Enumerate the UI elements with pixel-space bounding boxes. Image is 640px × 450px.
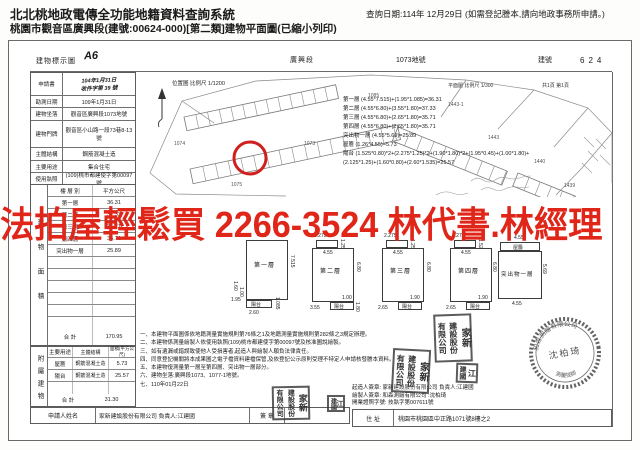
address-label: 住 址 [353, 410, 394, 426]
floor-name [48, 269, 93, 280]
info-row: 申請書 104年1月31日 收件字第 39 號 [31, 73, 135, 96]
attached-area: 5.73 [109, 361, 135, 367]
calc-line: 第二層 (4.55*6.80)+(3.55*1.80)=37.33 [343, 105, 613, 114]
info-value-line1: 109年1月31日 [82, 98, 117, 106]
attached-main: 主要用途 主體結構 面積(平方公尺) 屋簷 鋼筋混凝土造 5.73 陽台 鋼筋混… [48, 347, 135, 406]
col-structure: 主體結構 [73, 347, 109, 357]
applicant-label: 申請人姓名 [31, 408, 96, 423]
attached-total-label: 合 計 [48, 394, 88, 406]
attached-table: 附屬建物 主要用途 主體結構 面積(平方公尺) 屋簷 鋼筋混凝土造 5.73 陽… [30, 346, 136, 407]
info-value-line2: 收件字第 39 號 [81, 83, 118, 92]
calc-line: (2.125*1.25)+(1.60*0.80)+(2.60*1.535)=25… [343, 159, 613, 168]
info-label: 勘測日期 [31, 96, 63, 107]
attached-structure: 鋼筋混凝土造 [73, 370, 109, 381]
area-total-row: 合 計 170.95 [48, 329, 135, 345]
floor-name [48, 257, 93, 268]
info-value-line1: 集合住宅 [88, 163, 110, 171]
info-label: 建物坐落 [31, 108, 63, 120]
note-lines: 一、本建物平面圖係依地籍測量實施規則第76條之1及地籍測量實施規則第282條之3… [140, 331, 540, 389]
seal-text: 江 [467, 365, 477, 381]
company-seal: 家新 建設股份 有限公司 [433, 313, 473, 362]
svg-text:1439: 1439 [564, 183, 575, 189]
calc-line: 突出物一層 (4.55*5.69)=25.89 [343, 132, 613, 141]
person-seal: 江 建國 [456, 363, 479, 384]
license-line: 開業證照字號: 技執字第007611號 [352, 400, 434, 408]
info-value: 109年1月31日 [63, 96, 135, 107]
area-row [48, 269, 135, 281]
info-table: 申請書 104年1月31日 收件字第 39 號 勘測日期 109年1月31日 [30, 72, 136, 186]
doc-type-label: 建物標示圖 [36, 58, 76, 66]
area-row [48, 317, 135, 329]
svg-text:1075: 1075 [231, 182, 242, 188]
notes-block: 一、本建物平面圖係依地籍測量實施規則第76條之1及地籍測量實施規則第282條之3… [140, 331, 540, 389]
info-label: 申請書 [31, 73, 63, 95]
seal-text: 建設股份 [285, 388, 297, 418]
info-label: 主體結構 [31, 148, 63, 160]
stamp-title-arc: 測量技師 [553, 366, 578, 381]
area-row [48, 281, 135, 293]
north-arrow-icon [158, 88, 166, 127]
attached-use [48, 382, 73, 394]
info-row: 勘測日期 109年1月31日 [31, 96, 135, 108]
area-row [48, 257, 135, 269]
building-no-value: 624 [580, 56, 605, 65]
map-scale-label: 位置圖 比例尺 1/1200 [172, 79, 225, 87]
floor-name [48, 281, 93, 292]
svg-text:1074: 1074 [174, 141, 185, 147]
document-viewer-page: 北北桃地政電傳全功能地籍資料查詢系統 桃園市觀音區廣興段(建號:00624-00… [0, 0, 640, 450]
area-total-label: 合 計 [48, 329, 93, 345]
col-sqm: 平方公尺 [93, 187, 135, 195]
parcel-number: 1073地號 [396, 57, 426, 65]
building-strip [184, 85, 339, 131]
info-label: 建物門牌 [31, 121, 63, 147]
info-value: 觀音區小山路一段73巷8-13號 [63, 121, 135, 147]
info-value: 鋼筋混凝土造 [63, 148, 135, 160]
info-value-line1: 鋼筋混凝土造 [82, 150, 115, 158]
seal-text: 有限公司 [274, 388, 286, 418]
attached-row [48, 382, 135, 394]
highlight-circle [234, 142, 266, 174]
address-row: 住 址 桃園市桃園區中正路1071號8樓之2 [352, 409, 612, 427]
seal-text: 家新 [296, 388, 308, 418]
calc-line: 第一層 (4.55*7.515)+(1.95*1.085)=36.31 [343, 96, 613, 105]
seal-text: 建國 [329, 397, 336, 410]
section-name: 廣興段 [290, 57, 314, 65]
stamp-name: 沈柏琦 [548, 344, 582, 361]
doc-subtitle: 桃園市觀音區廣興段(建號:00624-000)[第二類]建物平面圖(已縮小列印) [10, 21, 337, 36]
note-line: 四、同意登記機關將本成果圖之電子檔資料建檔保管,及依登記公示原則受理不特定人申請… [140, 356, 540, 364]
company-seal: 家新 建設股份 有限公司 [391, 348, 431, 394]
note-line: 七、110年01月22日 [140, 381, 540, 389]
note-line: 三、如有遺漏或錯誤致使他人受損害者,起造人與繪製人願負法律責任。 [140, 348, 540, 356]
attached-use: 陽台 [48, 370, 73, 381]
calc-line: 陽台 (1.525*0.80)*2+(2.275*1.25)*2+(1.90*1… [343, 150, 613, 159]
info-value: 104年1月31日 收件字第 39 號 [63, 72, 136, 96]
person-seal: 江 建國 [327, 395, 345, 412]
area-row [48, 293, 135, 305]
doc-mark-handwritten: A6 [84, 50, 98, 62]
attached-side-label: 附屬建物 [31, 347, 48, 406]
attached-row: 陽台 鋼筋混凝土造 25.57 [48, 370, 135, 382]
query-date: 查詢日期:114年 12月29日 (如需登記謄本,請向地政事務所申請。) [366, 8, 605, 20]
applicant-value: 家新建設股份有限公司 負責人:江建國 [96, 408, 250, 423]
col-floor: 樓 層 別 [48, 185, 93, 196]
seal-text: 江 [336, 397, 343, 410]
info-value: 觀音區廣興段1073地號 [63, 108, 135, 120]
calc-line: 第四層 (4.55*6.80)+(2.65*1.80)=35.71 [343, 123, 613, 132]
note-line: 二、本建物係測量繪製人依使用執照(109)桃市都建使字第00097號及核准圖說繪… [140, 339, 540, 347]
info-row: 主體結構 鋼筋混凝土造 [31, 148, 135, 161]
col-use: 主要用途 [48, 347, 73, 357]
attached-total-row: 合 計 31.30 [48, 394, 135, 406]
address-value: 桃園市桃園區中正路1071號8樓之2 [394, 410, 611, 426]
floor-name [48, 305, 93, 316]
attached-total-value: 31.30 [88, 397, 135, 403]
info-row: 建物門牌 觀音區小山路一段73巷8-13號 [31, 121, 135, 148]
note-line: 五、本建物復測量第一層至第四層、突出物一層部分。 [140, 364, 540, 372]
floor-area: 25.89 [93, 248, 135, 254]
info-value-line1: 觀音區小山路一段73巷8-13號 [63, 126, 135, 142]
attached-row: 屋簷 鋼筋混凝土造 5.73 [48, 358, 135, 370]
calc-line: 第三層 (4.55*6.80)+(2.65*1.80)=35.71 [343, 114, 613, 123]
attached-use: 屋簷 [48, 358, 73, 369]
company-seal: 家新 建設股份 有限公司 [272, 386, 311, 421]
note-line: 六、建物坐落:廣興段1073、1077-1地號。 [140, 372, 540, 380]
area-row [48, 305, 135, 317]
info-rows: 申請書 104年1月31日 收件字第 39 號 勘測日期 109年1月31日 [31, 73, 135, 185]
attached-header-row: 主要用途 主體結構 面積(平方公尺) [48, 347, 135, 358]
ad-watermark: 法拍屋輕鬆買 2266-3524 林代書.林經理 [0, 196, 608, 248]
seal-text: 家新 [458, 315, 471, 359]
col-area2: 面積(平方公尺) [109, 346, 135, 358]
floor-name [48, 317, 93, 329]
attached-area: 25.57 [109, 373, 135, 379]
floor-name [48, 293, 93, 304]
drafter-sign-line: 繪製人簽章: 和森測繪有限公司 :沈柏琦 [352, 393, 446, 401]
info-row: 建物坐落 觀音區廣興段1073地號 [31, 108, 135, 121]
attached-structure: 鋼筋混凝土造 [73, 358, 109, 369]
seal-text: 家新 [416, 351, 429, 392]
calc-block: 第一層 (4.55*7.515)+(1.95*1.085)=36.31 第二層 … [343, 96, 613, 168]
calc-lines: 第一層 (4.55*7.515)+(1.95*1.085)=36.31 第二層 … [343, 96, 613, 168]
info-value-line1: 觀音區廣興段1073地號 [71, 110, 127, 118]
svg-text:測量技師: 測量技師 [553, 366, 578, 381]
attached-structure [73, 382, 109, 394]
calc-line: 屋簷 (1.26*4.55)=5.73 [343, 141, 613, 150]
building-no-label: 建號 [538, 57, 552, 65]
svg-text:1073: 1073 [304, 141, 315, 147]
attached-rows: 屋簷 鋼筋混凝土造 5.73 陽台 鋼筋混凝土造 25.57 [48, 358, 135, 394]
info-label: 主要用途 [31, 161, 63, 172]
note-line: 一、本建物平面圖係依地籍測量實施規則第76條之1及地籍測量實施規則第282條之3… [140, 331, 540, 339]
surveyor-round-stamp: 和森測繪有限公司 測量技師 沈柏琦 [522, 310, 608, 396]
area-total-value: 170.95 [93, 334, 135, 340]
